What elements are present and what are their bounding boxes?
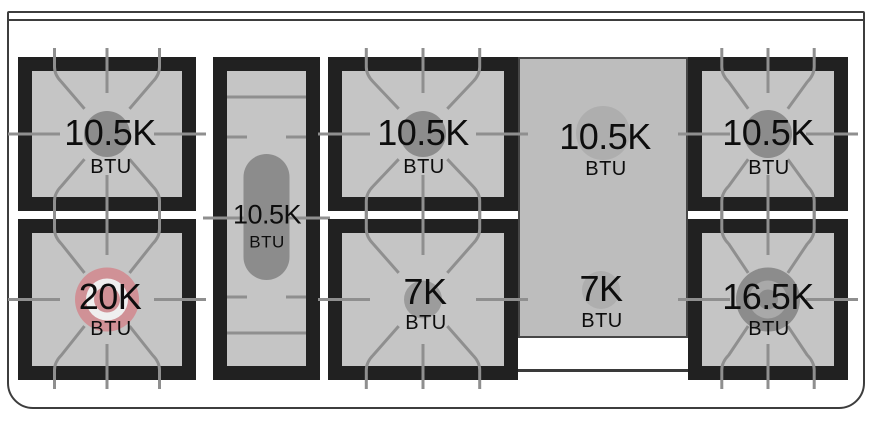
btu-value-center-rear: 10.5K: [377, 115, 469, 151]
btu-value-right-front: 16.5K: [722, 279, 814, 315]
griddle-front-cutout: [518, 338, 688, 372]
btu-unit-griddle-front: BTU: [581, 311, 623, 331]
btu-value-center-front: 7K: [403, 274, 446, 310]
btu-value-left-front: 20K: [79, 279, 142, 315]
cooktop-back-edge-line: [9, 19, 863, 21]
btu-unit-left-rear: BTU: [90, 157, 132, 177]
btu-unit-center-front: BTU: [405, 313, 447, 333]
cooktop-diagram: 10.5K BTU 20K BTU 10.5K BTU 10.5K BTU 7K…: [0, 0, 872, 424]
btu-value-left-rear: 10.5K: [64, 115, 156, 151]
btu-unit-left-front: BTU: [90, 319, 132, 339]
btu-value-griddle-front: 7K: [579, 271, 622, 307]
btu-value-right-rear: 10.5K: [722, 115, 814, 151]
btu-value-center-oval: 10.5K: [233, 202, 301, 229]
btu-unit-griddle-rear: BTU: [585, 159, 627, 179]
btu-value-griddle-rear: 10.5K: [559, 119, 651, 155]
btu-unit-center-oval: BTU: [249, 234, 285, 251]
btu-unit-right-front: BTU: [748, 319, 790, 339]
btu-unit-right-rear: BTU: [748, 158, 790, 178]
btu-unit-center-rear: BTU: [403, 157, 445, 177]
